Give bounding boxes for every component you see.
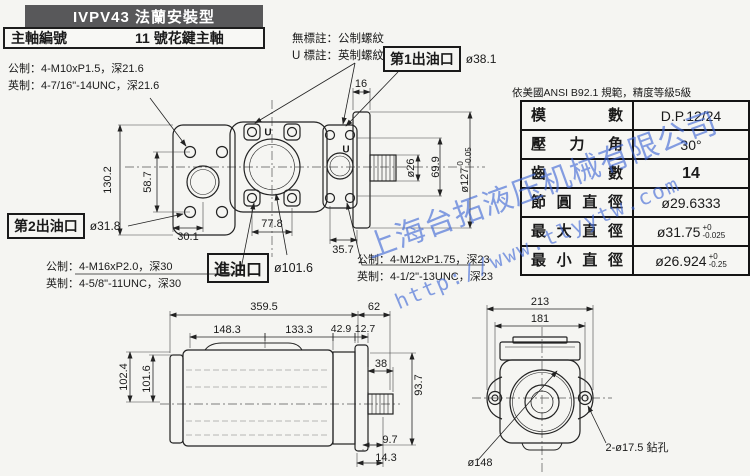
catalog-page: IVPV43 法蘭安裝型 主軸編號 11 號花鍵主軸 公制：4-M10xP1.5… xyxy=(0,0,750,476)
dim-rear-drill: 2-ø17.5 鉆孔 xyxy=(606,439,669,455)
dim-front-right-span: 35.7 xyxy=(332,244,353,256)
table-row: 最小直徑 ø26.924 +0 -0.25 xyxy=(522,247,748,274)
outlet2-dia: ø31.8 xyxy=(90,219,121,233)
inlet-name: 進油口 xyxy=(207,253,269,283)
dim-front-pilot-dia: 69.9 xyxy=(430,156,442,177)
thread-spec-inlet-imperial: 英制：4-5/8"-11UNC，深30 xyxy=(46,276,181,293)
outlet2-label: 第2出油口 ø31.8 xyxy=(7,213,120,239)
table-row: 節圓直徑 ø29.6333 xyxy=(522,189,748,218)
note-no-mark: 無標註：公制螺紋 xyxy=(292,31,384,48)
tolerance: +0 -0.25 xyxy=(709,253,727,269)
side-view-drawing xyxy=(100,295,460,476)
dim-side-off2: 14.3 xyxy=(375,452,396,464)
thread-spec-outlet-metric: 公制：4-M12xP1.75，深23 xyxy=(357,252,493,269)
dim-side-h-outer: 102.4 xyxy=(118,363,130,391)
dim-front-center-span: 77.8 xyxy=(261,218,282,230)
shaft-number-bar: 主軸編號 11 號花鍵主軸 xyxy=(3,27,265,49)
thread-spec-top-metric: 公制：4-M10xP1.5，深21.6 xyxy=(8,61,159,78)
dim-front-left-span: 30.1 xyxy=(177,231,198,243)
spline-standard-note: 依美國ANSI B92.1 規範，精度等級5級 xyxy=(512,85,691,100)
table-row: 最大直徑 ø31.75 +0 -0.025 xyxy=(522,218,748,247)
dim-rear-bolt-span: 181 xyxy=(531,313,549,325)
dim-side-overall-len: 359.5 xyxy=(250,301,278,313)
table-row: 齒數 14 xyxy=(522,160,748,189)
dim-side-rear-len: 62 xyxy=(368,301,380,313)
inlet-label: 進油口 ø101.6 xyxy=(207,253,313,283)
outlet1-dia: ø38.1 xyxy=(466,52,497,66)
thread-spec-top-imperial: 英制：4-7/16"-14UNC，深21.6 xyxy=(8,78,159,95)
dimension-lines xyxy=(130,315,412,463)
dim-front-overall-height: 130.2 xyxy=(102,166,114,194)
thread-mark-notes: 無標註：公制螺紋 U 標註：英制螺紋 xyxy=(292,31,384,65)
table-row: 模數 D.P.12/24 xyxy=(522,102,748,131)
spline-table: 模數 D.P.12/24 壓力角 30° 齒數 14 節圓直徑 ø29.6333… xyxy=(520,100,750,276)
thread-spec-outlet-imperial: 英制：4-1/2"-13UNC，深23 xyxy=(357,269,493,286)
extension-lines xyxy=(118,88,472,244)
u-thread-mark: U xyxy=(264,128,271,139)
outlet2-name: 第2出油口 xyxy=(7,213,85,239)
dim-front-bolt-span: 58.7 xyxy=(142,171,154,192)
dim-front-shaft-dia: ø26 xyxy=(405,159,417,178)
pump-rear-outline xyxy=(487,337,593,450)
pump-side-outline xyxy=(170,343,393,451)
dim-side-seg3: 42.9 xyxy=(331,323,351,335)
dim-side-h-inner: 101.6 xyxy=(141,365,153,393)
dim-side-shaft-len: 38 xyxy=(375,358,387,370)
thread-spec-inlet-metric: 公制：4-M16xP2.0，深30 xyxy=(46,259,181,276)
outlet1-label: 第1出油口 ø38.1 xyxy=(383,46,496,72)
pump-front-outline xyxy=(173,112,396,235)
dim-front-flange-thk: 16 xyxy=(355,78,367,90)
page-title: IVPV43 法蘭安裝型 xyxy=(25,5,263,27)
thread-spec-outlet: 公制：4-M12xP1.75，深23 英制：4-1/2"-13UNC，深23 xyxy=(357,252,493,286)
inlet-dia: ø101.6 xyxy=(274,261,313,275)
tolerance: +0 -0.025 xyxy=(702,224,725,240)
note-u-mark: U 標註：英制螺紋 xyxy=(292,48,384,65)
dim-front-spigot-dia: ø1270-0.05 xyxy=(457,147,473,192)
shaft-number-value: 11 號花鍵主軸 xyxy=(135,29,224,47)
thread-spec-inlet: 公制：4-M16xP2.0，深30 英制：4-5/8"-11UNC，深30 xyxy=(46,259,181,293)
table-row: 壓力角 30° xyxy=(522,131,748,160)
outlet1-name: 第1出油口 xyxy=(383,46,461,72)
shaft-number-label: 主軸編號 xyxy=(11,29,67,47)
dim-side-seg1: 148.3 xyxy=(213,324,241,336)
dim-rear-width: 213 xyxy=(531,296,549,308)
dim-side-seg4: 12.7 xyxy=(355,323,375,335)
u-thread-mark: U xyxy=(342,145,349,156)
thread-spec-top: 公制：4-M10xP1.5，深21.6 英制：4-7/16"-14UNC，深21… xyxy=(8,61,159,95)
dim-side-seg2: 133.3 xyxy=(285,324,313,336)
dim-side-h-right: 93.7 xyxy=(413,374,425,395)
dim-side-off1: 9.7 xyxy=(382,434,397,446)
dim-rear-pilot: ø148 xyxy=(467,457,492,469)
